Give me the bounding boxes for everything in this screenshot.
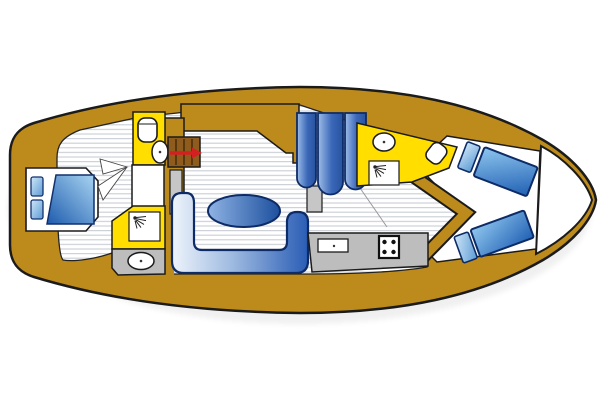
toilet-icon bbox=[138, 118, 157, 142]
sink-drain bbox=[333, 245, 335, 247]
double-bed bbox=[26, 168, 98, 231]
floorplan-canvas bbox=[0, 0, 600, 400]
vanity-forward bbox=[112, 249, 165, 275]
head-forward bbox=[133, 112, 168, 165]
companionway bbox=[168, 137, 202, 167]
bed-pillow bbox=[31, 200, 43, 219]
wardrobe bbox=[297, 113, 366, 195]
burner bbox=[382, 240, 386, 244]
cabinet-forward bbox=[132, 165, 164, 207]
wardrobe-panel bbox=[318, 113, 343, 195]
burner bbox=[382, 250, 386, 254]
dinette-table bbox=[208, 195, 280, 227]
burner bbox=[391, 250, 395, 254]
wardrobe-panel bbox=[297, 113, 316, 187]
galley bbox=[308, 233, 428, 272]
burner bbox=[391, 240, 395, 244]
stove-burners-icon bbox=[379, 236, 399, 258]
basin-drain bbox=[383, 141, 386, 144]
boat-floorplan bbox=[0, 0, 600, 400]
basin-drain bbox=[140, 260, 143, 263]
bed-pillow bbox=[31, 177, 43, 196]
basin-drain bbox=[159, 151, 162, 154]
bed-mattress bbox=[47, 175, 94, 224]
